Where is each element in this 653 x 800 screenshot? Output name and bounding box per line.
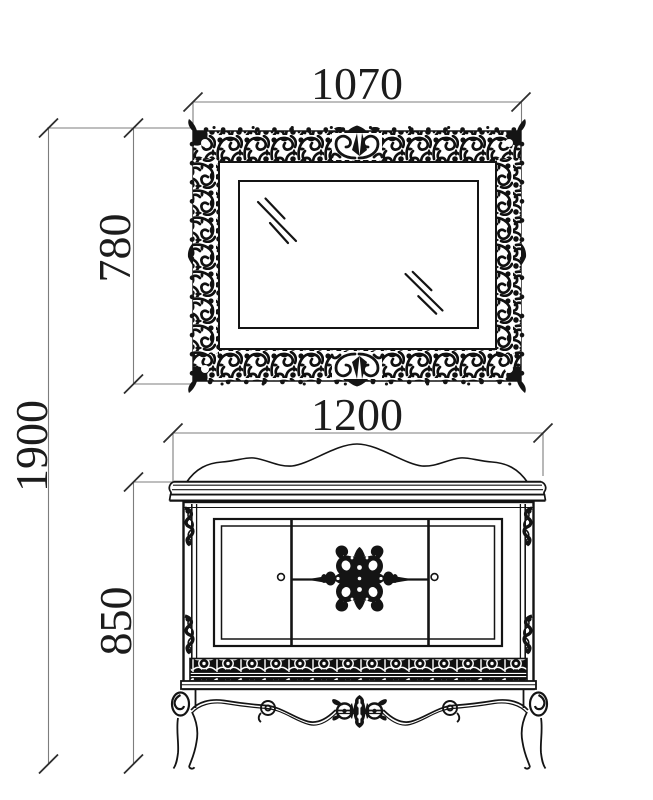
svg-text:780: 780 <box>89 214 140 283</box>
svg-text:1200: 1200 <box>311 389 403 440</box>
svg-text:850: 850 <box>90 587 141 656</box>
svg-text:1070: 1070 <box>311 58 403 109</box>
svg-text:1900: 1900 <box>6 400 57 492</box>
